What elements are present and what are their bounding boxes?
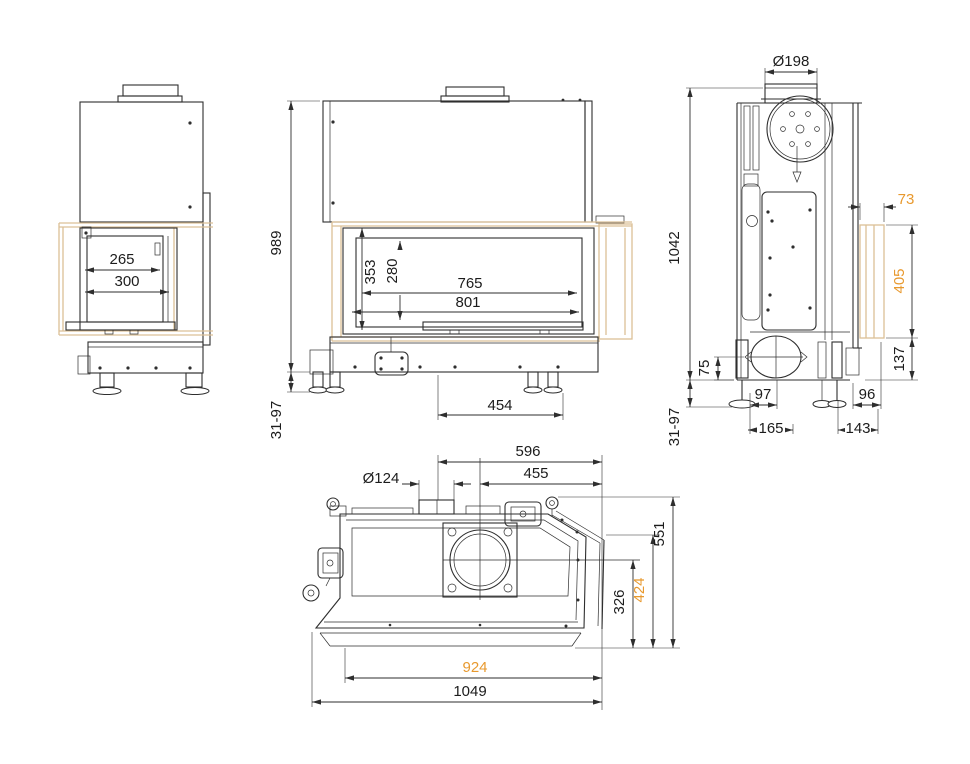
top-view: 596 455 Ø124 551 424 326 924 104 xyxy=(303,443,680,710)
dim-right-rear-leg-span: 143 xyxy=(845,420,870,437)
right-base-frame xyxy=(737,332,850,380)
left-dimensions: 265 300 xyxy=(85,251,169,292)
left-side-rail xyxy=(203,193,210,345)
dim-front-glass-inner-width: 765 xyxy=(457,275,482,292)
dim-top-flue-to-edge: 455 xyxy=(523,465,548,482)
dim-left-door-depth: 300 xyxy=(114,273,139,290)
dim-top-glass-width: 924 xyxy=(462,659,487,676)
dim-front-leg-range: 31-97 xyxy=(268,401,285,439)
dim-right-front-leg-span: 165 xyxy=(758,420,783,437)
dim-top-total-width: 1049 xyxy=(453,683,486,700)
dim-right-rear-offset: 96 xyxy=(859,386,876,403)
dim-top-intake-diameter: Ø124 xyxy=(363,470,400,487)
dim-front-glass-inner-height: 280 xyxy=(384,258,401,283)
top-corner-glass-edge xyxy=(552,511,604,629)
right-side-panels xyxy=(742,184,816,330)
right-side-view: Ø198 1042 31-97 73 405 137 xyxy=(666,53,918,446)
top-right-latch xyxy=(505,497,558,526)
right-adjustable-feet xyxy=(729,340,846,408)
technical-drawing-page: 265 300 xyxy=(0,0,970,764)
dim-top-total-depth: 551 xyxy=(651,521,668,546)
right-pulley-wheel xyxy=(767,96,833,162)
right-air-duct xyxy=(745,336,807,378)
top-front-glass-strip xyxy=(320,633,581,646)
dim-right-corner-bottom-offset: 137 xyxy=(891,346,908,371)
dim-front-glass-outer-width: 801 xyxy=(455,294,480,311)
front-body-right-strip xyxy=(585,101,592,222)
dim-top-firebox-depth: 326 xyxy=(611,589,628,614)
left-side-view: 265 300 xyxy=(59,85,213,395)
left-base-frame xyxy=(78,342,203,374)
front-body-screws xyxy=(331,99,581,205)
dim-right-intake-offset: 75 xyxy=(696,360,713,377)
right-corner-glass-highlight xyxy=(860,225,884,338)
dim-right-flue-diameter: Ø198 xyxy=(773,53,810,70)
top-firebox-inner xyxy=(352,528,570,596)
left-glass-clip xyxy=(155,243,160,255)
dim-right-total-height: 1042 xyxy=(666,231,683,264)
dim-left-glass-inner-depth: 265 xyxy=(109,251,134,268)
dim-right-intake-center: 97 xyxy=(755,386,772,403)
front-adjustable-feet xyxy=(309,372,562,393)
left-adjustable-feet xyxy=(93,373,209,395)
right-vent-slots xyxy=(744,106,759,186)
top-body-inner-wall xyxy=(324,520,578,622)
right-body-outline xyxy=(737,103,862,380)
left-body-outline xyxy=(80,102,203,222)
left-body-screws xyxy=(188,121,191,208)
top-dimensions: 596 455 Ø124 551 424 326 924 104 xyxy=(312,443,680,710)
front-view: 989 31-97 353 280 765 801 454 xyxy=(268,87,632,439)
dim-right-leg-range: 31-97 xyxy=(666,408,683,446)
dim-top-glass-depth: 424 xyxy=(631,577,648,602)
front-base-frame xyxy=(310,337,598,375)
left-flue-flange xyxy=(118,96,182,102)
dim-front-leg-spacing: 454 xyxy=(487,397,512,414)
dim-right-corner-depth: 73 xyxy=(898,191,915,208)
dim-top-intake-to-edge: 596 xyxy=(515,443,540,460)
fireplace-dimension-drawing: 265 300 xyxy=(0,0,970,764)
left-flue-stub xyxy=(123,85,178,96)
right-dimensions: Ø198 1042 31-97 73 405 137 xyxy=(666,53,918,446)
left-door-sill xyxy=(66,322,175,334)
dim-front-body-height: 989 xyxy=(268,230,285,255)
dim-right-corner-height: 405 xyxy=(891,268,908,293)
front-door-sill xyxy=(423,322,583,334)
front-flue-stub xyxy=(446,87,504,96)
right-lift-hook xyxy=(793,146,801,182)
front-body-outline xyxy=(323,101,585,222)
dim-front-glass-outer-height: 353 xyxy=(362,259,379,284)
top-edge-tabs xyxy=(352,500,500,514)
